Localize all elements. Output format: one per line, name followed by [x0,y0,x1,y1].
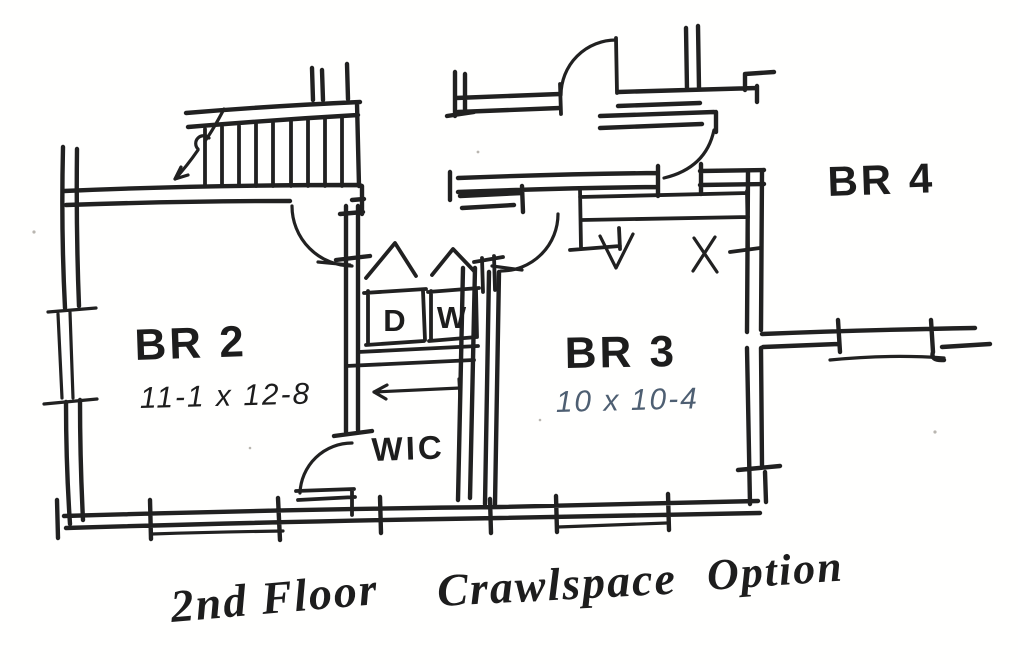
hall-wall [64,185,364,214]
stair-down-arrow-icon [175,109,224,179]
wic-label: WIC [371,428,445,468]
laundry-bifold-doors [366,243,475,278]
br4-label: BR 4 [827,154,936,205]
br3-door-arc [492,214,558,271]
br3-closet-door-marks [600,234,717,272]
br3-top-wall [450,164,764,212]
caption: 2nd Floor Crawlspace Option [167,542,845,632]
br3-dimensions: 10 x 10-4 [555,382,699,419]
left-window [44,308,97,404]
br4-passage-sill [830,356,944,360]
br4-passage [762,320,990,360]
floor-plan-sketch-page: BR 2 11-1 x 12-8 BR 3 10 x 10-4 BR 4 D W… [0,0,1018,664]
br3-closet [570,189,760,272]
br2-label: BR 2 [134,317,248,370]
wic-door-arc [300,443,352,493]
laundry-closet [346,243,503,366]
paper-speck [933,430,936,433]
hall-door-arc [561,40,616,95]
stair-treads [205,117,342,186]
br2-dimensions: 11-1 x 12-8 [139,378,311,415]
upper-hall-wall [600,112,716,132]
wic-rod-arrow-icon [374,379,460,399]
caption-option: Option [705,542,845,600]
caption-crawlspace: Crawlspace [436,553,678,616]
hall-door-leaf [560,38,617,114]
washer-label: W [437,300,469,335]
wic-closet [374,379,460,399]
floor-plan-sketch: BR 2 11-1 x 12-8 BR 3 10 x 10-4 BR 4 D W… [0,0,1018,664]
paper-speck [249,447,252,450]
right-wall [738,172,780,504]
paper-speck [539,419,542,422]
dryer-label: D [383,303,408,338]
br3-closet-walls [570,189,760,252]
br4-passage-walls [762,320,990,360]
br3-label: BR 3 [564,327,677,378]
paper-speck [477,151,480,154]
caption-floor: 2nd Floor [167,563,380,632]
paper-speck [32,230,35,233]
stairs [175,64,360,186]
